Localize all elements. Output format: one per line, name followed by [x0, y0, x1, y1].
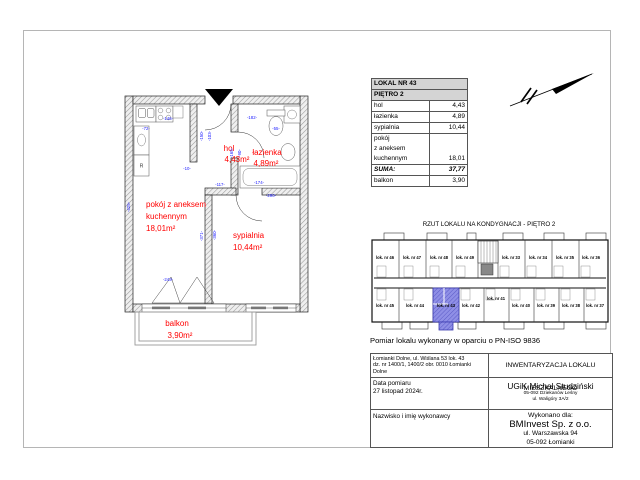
floor-plan-drawing: R hol 4,43m² łazienka 4,89m² pokój z ane… — [115, 85, 325, 355]
table-row: łazienka 4,89 — [372, 112, 467, 123]
unit-label: lok. nr 38 — [562, 303, 581, 308]
date-label: Data pomiaru — [373, 380, 486, 388]
row-label-line: pokój — [374, 134, 429, 144]
unit-label: lok. nr 34 — [529, 255, 548, 260]
row-value: 18,01 — [430, 134, 467, 164]
highlighted-unit-43 — [433, 288, 459, 330]
dim: -55- — [272, 126, 280, 131]
unit-label: lok. nr 40 — [512, 303, 531, 308]
unit-label-highlighted: lok. nr 43 — [437, 303, 456, 308]
dim: -290- — [266, 193, 277, 198]
dim: -117- — [215, 182, 225, 187]
info-row-address: Łomianki Dolne, ul. Wiślana 53 lok. 43 d… — [371, 354, 612, 378]
address-line2: dz. nr 1400/1, 1400/2 obr. 0010 Łomianki… — [373, 362, 486, 375]
document-page: R hol 4,43m² łazienka 4,89m² pokój z ane… — [0, 0, 640, 480]
unit-label: lok. nr 49 — [456, 255, 475, 260]
unit-label: lok. nr 47 — [403, 255, 422, 260]
row-label: sypialnia — [372, 123, 430, 133]
dim: -90- — [237, 149, 242, 157]
dim: -165- — [229, 147, 234, 158]
client-cell: Wykonano dla: BMInvest Sp. z o.o. ul. Wa… — [489, 410, 612, 447]
dim: -360- — [212, 229, 217, 240]
row-value: 4,89 — [430, 112, 467, 122]
unit-label: lok. nr 42 — [462, 303, 481, 308]
dim: -150- — [199, 130, 204, 141]
row-value: 3,90 — [430, 176, 467, 186]
room-label-lazienka: łazienka — [252, 148, 282, 157]
row-value: 10,44 — [430, 123, 467, 133]
unit-label: lok. nr 36 — [582, 255, 601, 260]
table-row: hol 4,43 — [372, 101, 467, 112]
room-label-sypialnia: sypialnia — [233, 231, 265, 240]
dim: -243- — [163, 277, 174, 282]
dim: -10- — [183, 166, 191, 171]
room-area-pokoj: 18,01m² — [146, 224, 176, 233]
table-row-pokoj: pokój z aneksem kuchennym 18,01 — [372, 134, 467, 165]
room-area-lazienka: 4,89m² — [254, 159, 279, 168]
dim: -371- — [199, 230, 204, 241]
client-intro: Wykonano dla: — [489, 412, 612, 419]
keyplan-drawing: lok. nr 46 lok. nr 47 lok. nr 48 lok. nr… — [363, 228, 615, 336]
row-value: 37,77 — [430, 165, 467, 175]
address-cell: Łomianki Dolne, ul. Wiślana 53 lok. 43 d… — [371, 354, 489, 377]
windows — [142, 304, 296, 312]
dim: -72- — [142, 126, 150, 131]
unit-label: lok. nr 35 — [556, 255, 575, 260]
room-label-pokoj-2: kuchennym — [146, 212, 187, 221]
keyplan-title: RZUT LOKALU NA KONDYGNACJI - PIĘTRO 2 — [363, 221, 615, 228]
client-address1: ul. Warszawska 94 — [489, 430, 612, 439]
row-label: SUMA: — [372, 165, 430, 175]
room-label-pokoj-1: pokój z aneksem — [146, 200, 206, 209]
surveyor-name: UGiK Michał Studziński — [489, 381, 612, 391]
unit-label: lok. nr 41 — [487, 296, 506, 301]
table-row: sypialnia 10,44 — [372, 123, 467, 134]
table-row-suma: SUMA: 37,77 — [372, 165, 467, 176]
dim: -425- — [126, 201, 131, 212]
row-label-line: z aneksem — [374, 144, 429, 154]
unit-label: lok. nr 46 — [376, 255, 395, 260]
room-area-sypialnia: 10,44m² — [233, 243, 263, 252]
row-label: łazienka — [372, 112, 430, 122]
row-label: balkon — [372, 176, 430, 186]
client-address2: 05-092 Łomianki — [489, 439, 612, 448]
unit-label: lok. nr 33 — [502, 255, 521, 260]
row-label: hol — [372, 101, 430, 111]
dim: -182- — [247, 115, 258, 120]
room-label-balkon: balkon — [165, 319, 189, 328]
balcony-railing — [135, 312, 256, 345]
unit-label: lok. nr 48 — [430, 255, 449, 260]
area-table: LOKAL NR 43 PIĘTRO 2 hol 4,43 łazienka 4… — [371, 78, 468, 187]
executor-label: Nazwisko i imię wykonawcy — [371, 410, 489, 447]
date-value: 27 listopad 2024r. — [373, 388, 486, 396]
row-label: pokój z aneksem kuchennym — [372, 134, 430, 164]
table-row: balkon 3,90 — [372, 176, 467, 186]
unit-label: lok. nr 44 — [406, 303, 425, 308]
surveyor-cell: UGiK Michał Studziński 05-092 Dziekanów … — [489, 378, 612, 409]
north-arrow-icon — [500, 58, 610, 113]
surveyor-address2: ul. Waligóry 3A/2 — [489, 397, 612, 403]
dim: -174- — [254, 180, 265, 185]
area-table-floor: PIĘTRO 2 — [372, 90, 467, 101]
info-row-date: Data pomiaru 27 listopad 2024r. UGiK Mic… — [371, 378, 612, 410]
area-table-title: LOKAL NR 43 — [372, 79, 467, 90]
entrance-arrow-icon — [205, 89, 233, 106]
doc-type: INWENTARYZACJA LOKALU MIESZKALNEGO — [489, 354, 612, 377]
dim: -146- — [163, 116, 174, 121]
room-area-balkon: 3,90m² — [168, 331, 193, 340]
row-value: 4,43 — [430, 101, 467, 111]
row-label-line: kuchennym — [374, 154, 429, 164]
fridge-label: R — [140, 164, 144, 170]
date-cell: Data pomiaru 27 listopad 2024r. — [371, 378, 489, 409]
client-name: BMInvest Sp. z o.o. — [489, 419, 612, 430]
info-table: Łomianki Dolne, ul. Wiślana 53 lok. 43 d… — [370, 353, 613, 448]
unit-label: lok. nr 37 — [586, 303, 605, 308]
measurement-note: Pomiar lokalu wykonany w oparciu o PN-IS… — [370, 336, 540, 345]
dim: -103- — [207, 130, 212, 141]
info-row-executor: Nazwisko i imię wykonawcy Wykonano dla: … — [371, 410, 612, 447]
unit-label: lok. nr 45 — [376, 303, 395, 308]
unit-label: lok. nr 39 — [537, 303, 556, 308]
